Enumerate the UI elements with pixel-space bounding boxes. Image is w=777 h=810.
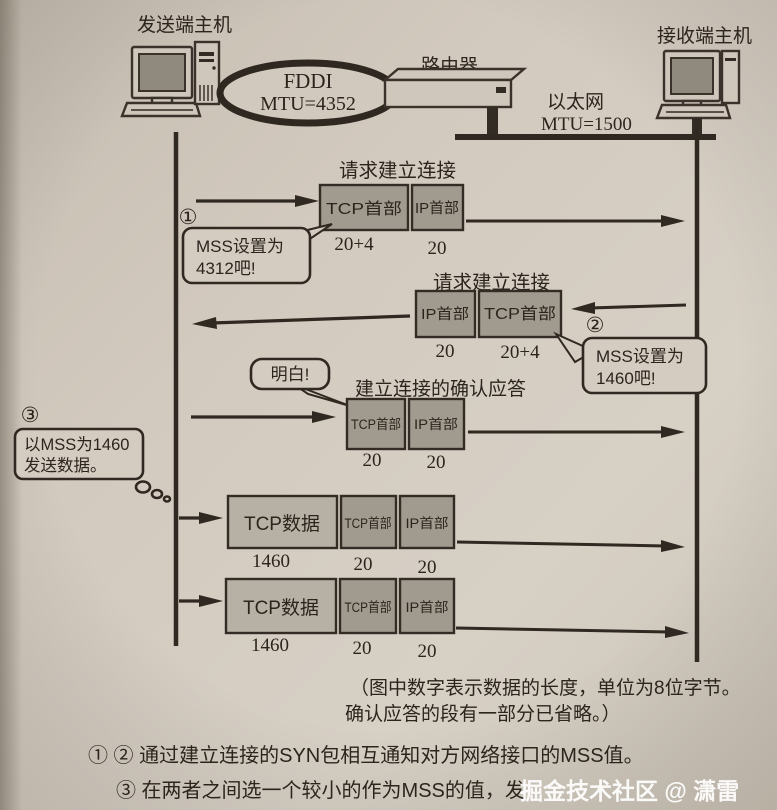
row2-step-badge: ② (586, 314, 605, 337)
row3-tcp-size: 20 (363, 450, 382, 471)
row2-ip-size: 20 (436, 341, 455, 362)
mss-negotiation-diagram: 发送端主机 FDDI MTU=4352 路由器 (0, 0, 777, 810)
sender-host-label: 发送端主机 (137, 14, 232, 36)
row4-data-size: 1460 (252, 551, 290, 572)
thought-line2: 发送数据。 (24, 456, 107, 475)
ethernet-mtu-label: MTU=1500 (541, 114, 632, 135)
row1-tcp-size: 20+4 (334, 234, 374, 255)
fddi-name-label: FDDI (283, 69, 332, 93)
row5-tcp-data-label: TCP数据 (243, 597, 319, 619)
caption-line2: 确认应答的段有一部分已省略。） (345, 703, 621, 725)
row3-bubble-text: 明白! (271, 365, 310, 384)
row1-title: 请求建立连接 (339, 160, 456, 182)
row1-ip-header-label: IP首部 (415, 200, 459, 217)
book-page-photo: 发送端主机 FDDI MTU=4352 路由器 (0, 0, 777, 810)
note-step-3: ③ 在两者之间选一个较小的作为MSS的值，发 (116, 779, 525, 802)
row1-tcp-header-label: TCP首部 (326, 200, 402, 218)
row2-ip-header-label: IP首部 (421, 306, 469, 323)
row4-ip-size: 20 (418, 557, 437, 578)
fddi-mtu-label: MTU=4352 (260, 93, 356, 115)
row2-tcp-header-label: TCP首部 (484, 305, 556, 323)
caption-line1: （图中数字表示数据的长度，单位为8位字节。 (350, 677, 741, 699)
row1-ip-size: 20 (428, 238, 447, 259)
thought-line1: 以MSS为1460 (24, 435, 129, 454)
fddi-ring: FDDI MTU=4352 (220, 63, 396, 123)
row5-ip-size: 20 (418, 641, 437, 662)
row5-ip-header-label: IP首部 (406, 600, 449, 615)
ethernet-name-label: 以太网 (547, 91, 604, 113)
note3-step-badge: ③ (21, 404, 40, 427)
row3-ip-header-label: IP首部 (414, 417, 458, 432)
row4-ip-header-label: IP首部 (406, 516, 449, 531)
row5-tcp-size: 20 (353, 638, 372, 659)
row2-bubble-line2: 1460吧! (596, 369, 656, 388)
row2-tcp-size: 20+4 (500, 342, 540, 363)
thought-dot-small-icon (164, 497, 170, 502)
thought-dot-large-icon (136, 482, 150, 493)
row4-tcp-data-label: TCP数据 (244, 513, 320, 535)
row1-step-badge: ① (179, 206, 198, 229)
sender-computer-icon (122, 42, 219, 116)
row3-ip-size: 20 (427, 452, 446, 473)
row5-data-size: 1460 (251, 635, 289, 656)
receiver-host-label: 接收端主机 (657, 25, 752, 47)
row4-tcp-header-label: TCP首部 (345, 516, 392, 531)
note-steps-1-2: ① ② 通过建立连接的SYN包相互通知对方网络接口的MSS值。 (88, 744, 644, 767)
row3-tcp-header-label: TCP首部 (351, 417, 401, 432)
row4-tcp-size: 20 (354, 554, 373, 575)
row5-tcp-header-label: TCP首部 (345, 600, 392, 615)
thought-dot-medium-icon (152, 490, 162, 498)
row2-bubble-line1: MSS设置为 (596, 347, 684, 366)
row1-bubble-line1: MSS设置为 (196, 237, 284, 256)
row3-title: 建立连接的确认应答 (355, 378, 526, 400)
row1-bubble-line2: 4312吧! (196, 259, 256, 278)
watermark: 掘金技术社区 @ 潇雷 (520, 778, 739, 804)
